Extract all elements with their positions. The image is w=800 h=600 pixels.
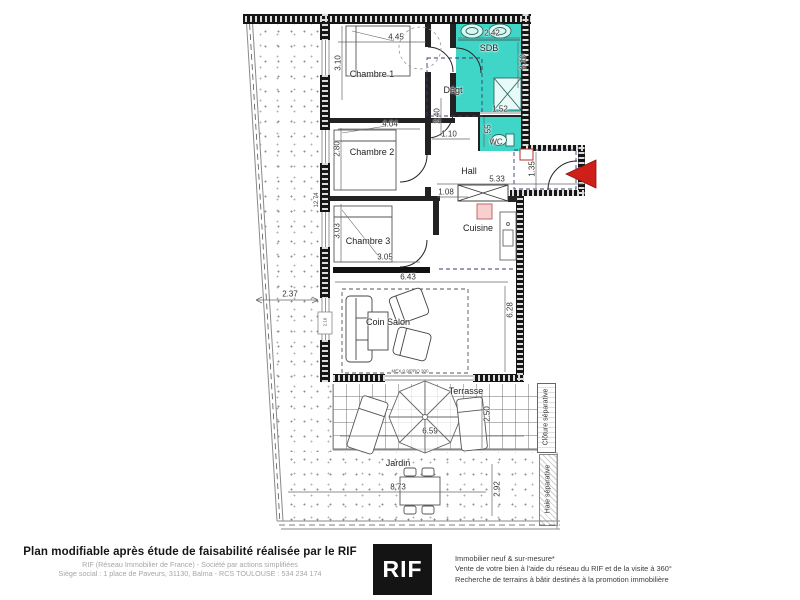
label-bay-window: MEX 0.9/PRO 300 xyxy=(391,369,428,374)
room-label-cuisine: Cuisine xyxy=(463,223,493,233)
dim-chambre3-height: 3.03 xyxy=(333,223,342,239)
lounger-1 xyxy=(346,395,388,455)
footer-left-block: Plan modifiable après étude de faisabili… xyxy=(20,546,360,578)
dim-hall-passage: 1.08 xyxy=(438,188,454,197)
room-label-chambre-2: Chambre 2 xyxy=(350,147,395,157)
dim-wc-height: .55 xyxy=(484,124,493,135)
rif-logo-text: RIF xyxy=(382,556,422,583)
dim-sdb-width: 2.42 xyxy=(484,29,500,38)
room-label-hall: Hall xyxy=(461,166,477,176)
dim-sejour-width: 6.43 xyxy=(400,273,416,282)
dim-terrasse-width: 6.59 xyxy=(422,427,438,436)
dim-hall-width: 5.33 xyxy=(489,175,505,184)
bed-chambre-2 xyxy=(334,130,396,190)
dim-degt-height: 2.40 xyxy=(433,108,442,124)
dim-chambre2-height: 2.80 xyxy=(333,141,342,157)
dim-chambre1-height: 3.10 xyxy=(334,55,343,71)
rif-logo: RIF xyxy=(373,544,432,595)
room-label-wc: WC xyxy=(489,138,502,147)
footer-address-line: Siège social : 1 place de Paveurs, 31130… xyxy=(20,569,360,578)
dim-wc-width: 1.52 xyxy=(492,105,508,114)
dim-jardin-width: 8.73 xyxy=(390,483,406,492)
footer-right-block: Immobilier neuf & sur-mesure* Vente de v… xyxy=(455,552,785,584)
label-haie-separative: Haie séparative xyxy=(545,465,552,514)
room-label-coin-salon: Coin Salon xyxy=(366,317,410,327)
dim-building-height: 12.74 xyxy=(314,192,320,207)
dim-chambre2-width: 4.04 xyxy=(382,120,398,129)
footer-service-line-1: Immobilier neuf & sur-mesure* xyxy=(455,554,785,563)
dim-chambre3-width: 3.05 xyxy=(377,253,393,262)
dim-sejour-height: 6.28 xyxy=(506,302,515,318)
dim-entry-height: 1.35 xyxy=(528,161,537,177)
dim-garden-left: 2.37 xyxy=(282,290,298,299)
kitchen-sink-unit xyxy=(477,204,492,219)
label-cloture-separative: Clôture séparative xyxy=(543,389,550,446)
footer-company-line: RIF (Réseau Immobilier de France) - Soci… xyxy=(20,560,360,569)
room-label-sdb: SDB xyxy=(480,43,499,53)
room-label-jardin: Jardin xyxy=(386,458,411,468)
walls xyxy=(243,14,585,382)
room-label-degt: Dégt xyxy=(443,85,462,95)
boiler xyxy=(520,149,533,160)
footer-main-text: Plan modifiable après étude de faisabili… xyxy=(20,546,360,558)
dim-jardin-height: 2.92 xyxy=(493,481,502,497)
dim-chambre1-width: 4.45 xyxy=(388,33,404,42)
room-label-chambre-3: Chambre 3 xyxy=(346,236,391,246)
dim-degt-passage: 1.10 xyxy=(441,130,457,139)
dim-salon-window: 2.16 xyxy=(323,318,328,327)
room-label-terrasse: Terrasse xyxy=(449,386,484,396)
room-label-chambre-1: Chambre 1 xyxy=(350,69,395,79)
footer: Plan modifiable après étude de faisabili… xyxy=(0,540,800,600)
dim-terrasse-height: 2.50 xyxy=(483,406,492,422)
dim-sdb-height: 3.10 xyxy=(519,54,528,70)
armchair-2 xyxy=(392,326,432,361)
footer-service-line-2: Vente de votre bien à l'aide du réseau d… xyxy=(455,564,785,573)
footer-service-line-3: Recherche de terrains à bâtir destinés à… xyxy=(455,575,785,584)
floor-plan-page: Chambre 1 Chambre 2 Chambre 3 SDB Dégt W… xyxy=(0,0,800,600)
